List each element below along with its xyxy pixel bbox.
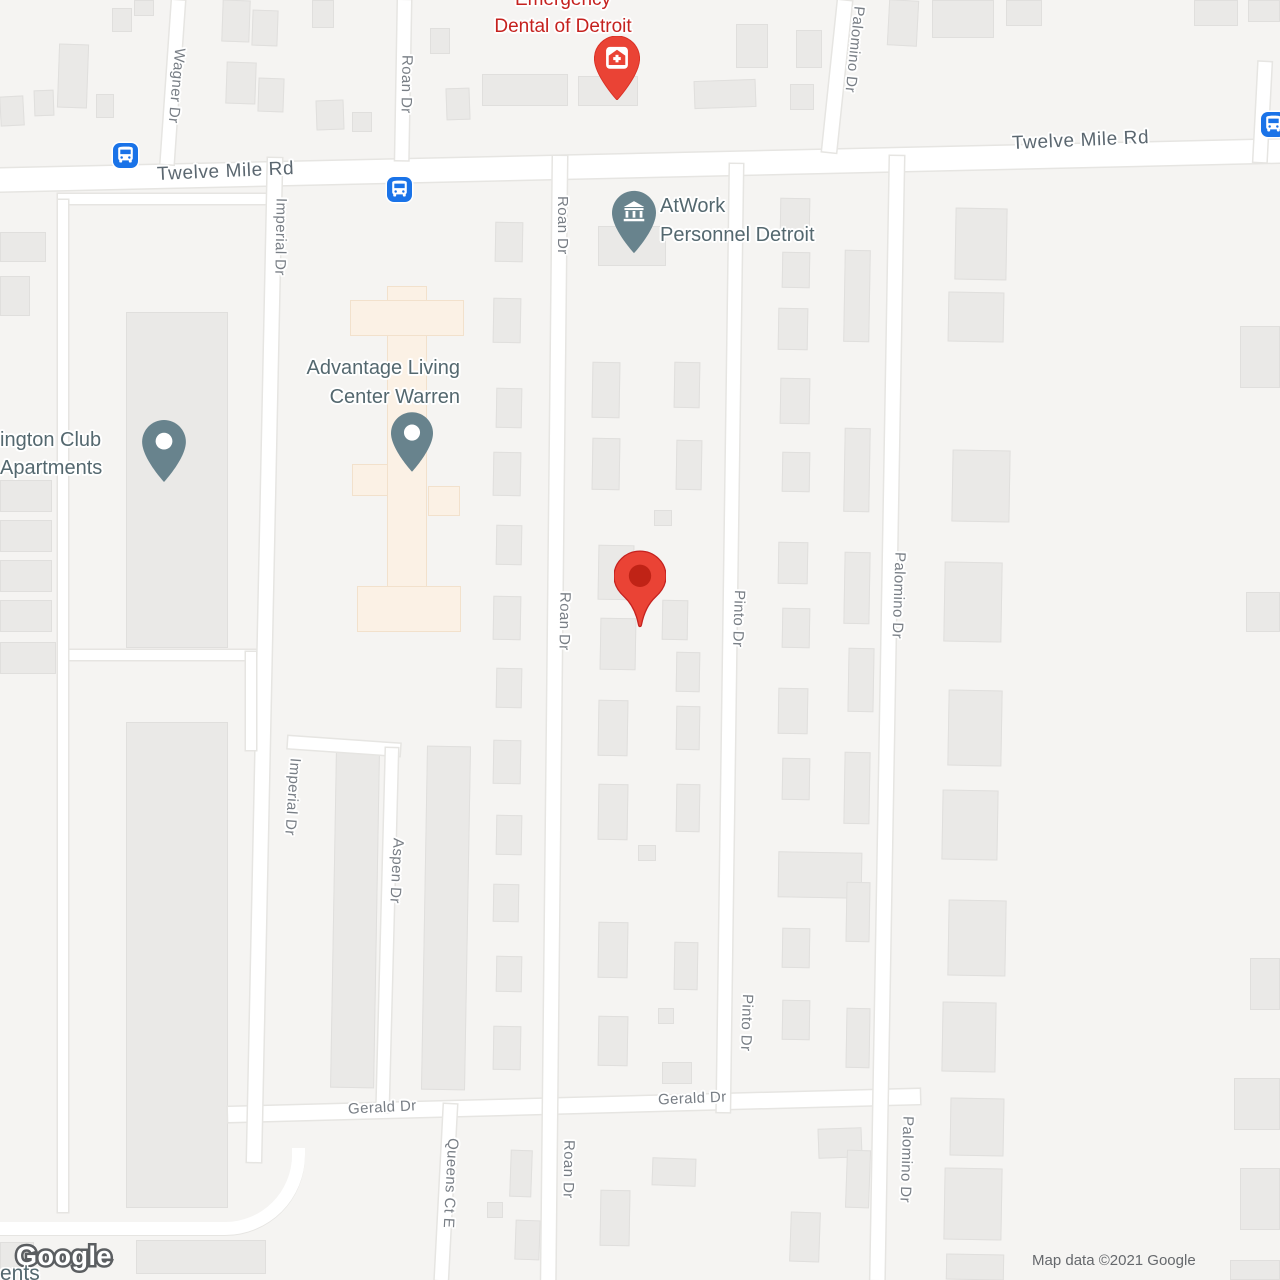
building [598,1016,629,1067]
road-lane-inner [246,652,256,750]
building [654,510,672,526]
building [662,1062,692,1084]
road-lane-left [58,200,68,1212]
building [598,922,629,979]
building [780,378,811,425]
street-label-roan-north: Roan Dr [397,55,415,114]
building [951,449,1010,522]
building [136,1240,266,1274]
building [948,292,1005,343]
road-aspen [376,748,398,1112]
building [598,700,629,757]
street-label-imperial-2: Imperial Dr [281,758,303,837]
building [887,0,919,47]
poi-atwork-line1: AtWork [660,192,815,221]
building [445,88,470,121]
street-label-palomino-1: Palomino Dr [888,552,908,639]
building [126,722,228,1208]
map-canvas[interactable]: Twelve Mile Rd Twelve Mile Rd Wagner Dr … [0,0,1280,1280]
street-label-gerald-1: Gerald Dr [348,1097,417,1118]
building [843,552,870,624]
poi-label-advantage[interactable]: Advantage Living Center Warren [240,354,460,412]
building [134,0,154,16]
building [845,1150,871,1209]
building [225,61,256,104]
building [496,388,523,428]
building [1234,1078,1280,1130]
poi-atwork-line2: Personnel Detroit [660,221,815,250]
poi-emergency-line1: Emergency [413,0,713,13]
building [0,95,25,126]
building [509,1150,533,1198]
building [1240,326,1280,388]
building [790,84,814,110]
street-label-imperial-1: Imperial Dr [271,198,289,276]
building [932,0,994,38]
building [676,784,701,832]
building [843,428,870,512]
building [782,252,811,288]
building [493,298,522,343]
street-label-roan-3: Roan Dr [559,1140,577,1199]
building [330,752,380,1089]
building [843,752,870,824]
street-label-pinto-1: Pinto Dr [729,590,748,648]
street-label-roan-1: Roan Dr [554,196,571,255]
building [676,652,701,692]
building [694,79,757,109]
building [652,1157,697,1187]
building [658,1008,674,1024]
main-location-marker[interactable] [614,550,666,638]
building [782,1000,811,1040]
building [312,0,334,28]
building [34,90,55,117]
road-palomino [870,156,904,1280]
building [0,232,46,262]
building [352,112,372,132]
bus-stop-icon-3[interactable] [1261,112,1280,137]
building [350,300,464,336]
building [845,882,870,942]
building [1246,592,1280,632]
street-label-gerald-2: Gerald Dr [658,1089,727,1109]
building [0,276,30,316]
building [943,562,1002,643]
building [600,1190,631,1247]
road-imperial-curve [0,1148,305,1235]
building [0,520,52,552]
building [638,845,656,861]
building [57,43,89,108]
street-label-roan-2: Roan Dr [555,592,573,651]
poi-label-emergency-dental[interactable]: Emergency Dental of Detroit [413,0,713,40]
poi-arlington-line2: Apartments [0,454,102,482]
building [421,746,471,1091]
building [947,899,1006,976]
building [941,1002,996,1073]
building [493,596,522,640]
place-dot-pin-icon-arlington[interactable] [142,420,186,482]
building [493,1026,522,1070]
building [112,8,132,32]
building [96,94,114,118]
poi-label-arlington[interactable]: ington Club Apartments [0,426,102,482]
building [598,784,629,841]
building [778,688,809,735]
road-lane-top [58,194,276,204]
building [493,452,522,496]
poi-advantage-line1: Advantage Living [240,354,460,383]
building [496,525,523,565]
building [514,1220,540,1261]
map-attribution: Map data ©2021 Google [1032,1252,1196,1269]
building [493,740,522,784]
poi-label-atwork[interactable]: AtWork Personnel Detroit [660,192,815,250]
building [1194,0,1238,26]
building [257,78,284,113]
building [674,942,699,990]
building [676,440,703,490]
building [941,790,998,861]
street-label-queens-ct: Queens Ct E [440,1138,462,1229]
street-label-pinto-2: Pinto Dr [737,994,756,1052]
building [674,362,701,408]
building [782,608,811,648]
building [493,884,520,922]
building [0,560,52,592]
building [845,1008,870,1068]
building [949,1098,1004,1157]
building [487,1202,503,1218]
building [482,74,568,106]
building [1240,1168,1280,1230]
street-label-aspen: Aspen Dr [386,838,406,905]
building [251,10,278,47]
building [495,222,524,262]
bus-stop-icon-2[interactable] [387,177,412,202]
building [357,586,461,632]
medical-house-pin-icon[interactable] [594,36,640,100]
building [782,928,811,968]
building [782,758,811,800]
building [0,642,56,674]
building [0,480,52,512]
building [1230,1260,1280,1280]
building [943,1167,1002,1240]
poi-emergency-line2: Dental of Detroit [413,13,713,40]
building [0,600,52,632]
institution-bank-pin-icon[interactable] [612,190,656,254]
bus-stop-icon-1[interactable] [113,143,138,168]
street-label-palomino-2: Palomino Dr [896,1116,916,1203]
building [592,362,621,418]
building [778,308,809,351]
building [1250,958,1280,1010]
partial-poi-label-bottom-left: ents [0,1262,40,1280]
building [847,648,874,712]
building [796,30,822,68]
building [592,438,621,490]
building [352,464,388,496]
building [946,1253,1004,1280]
poi-arlington-line1: ington Club [0,426,102,454]
building [496,668,523,708]
road-gerald [228,1089,920,1122]
building [954,208,1007,281]
building [947,690,1002,767]
building [496,815,523,855]
building [315,100,344,131]
building [789,1211,821,1262]
building [496,956,523,992]
poi-advantage-line2: Center Warren [240,383,460,412]
building [736,24,768,68]
building [221,0,250,42]
building [1248,0,1280,22]
building [782,452,811,492]
road-lane-mid [58,650,260,660]
place-dot-pin-icon-advantage[interactable] [391,412,433,472]
building [1006,0,1042,26]
building [843,250,871,342]
building [676,706,701,750]
building [778,542,809,585]
building [428,486,460,516]
